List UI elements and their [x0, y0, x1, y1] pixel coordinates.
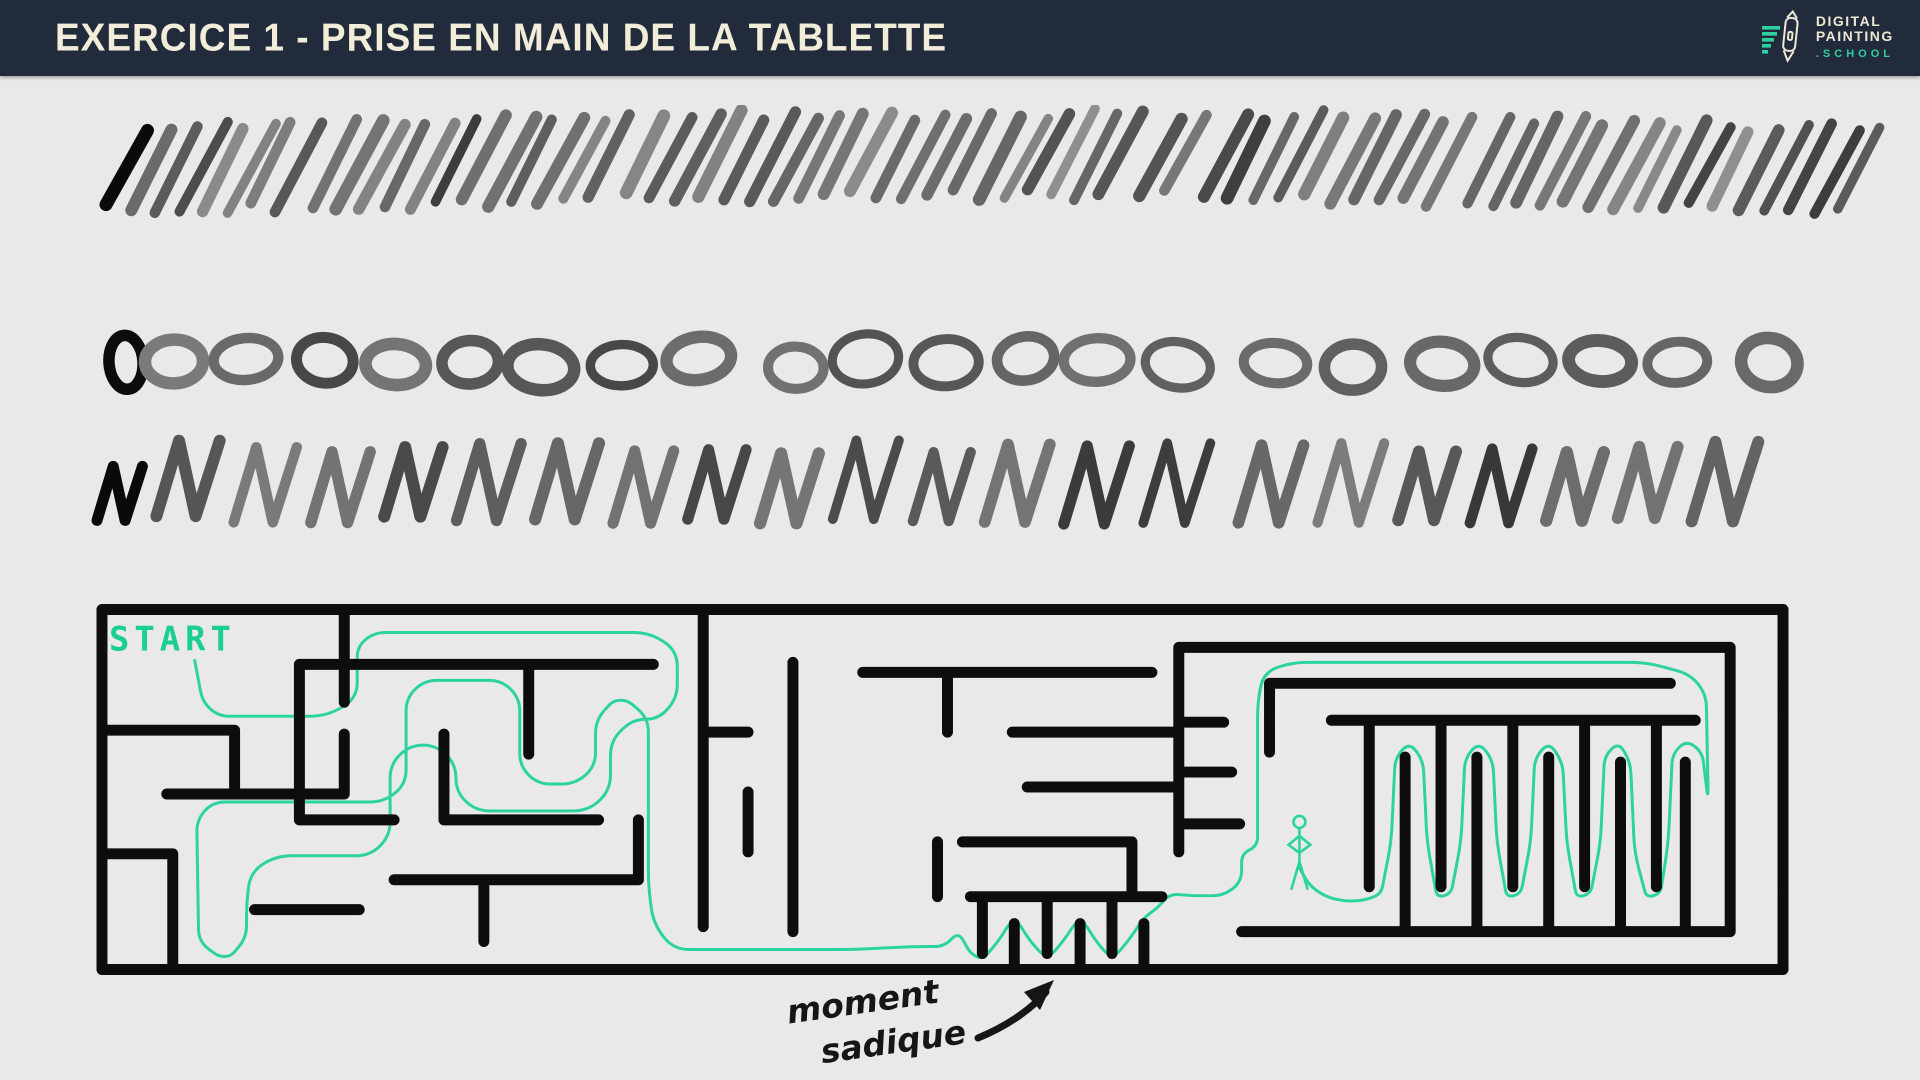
ink-oval — [440, 339, 500, 386]
ink-oval — [505, 341, 576, 393]
annotation-text: moment sadique — [784, 969, 968, 1075]
ink-stroke — [1064, 446, 1130, 524]
logo-word-school: .SCHOOL — [1816, 47, 1894, 62]
ink-oval — [212, 335, 280, 383]
ink-stroke — [1143, 443, 1210, 523]
page-title: EXERCICE 1 - PRISE EN MAIN DE LA TABLETT… — [55, 16, 947, 60]
n-strokes-row — [85, 430, 1915, 540]
ink-oval — [294, 334, 356, 387]
ink-stroke — [234, 447, 297, 522]
ink-stroke — [1318, 443, 1385, 522]
annotation: moment sadique — [730, 952, 1120, 1078]
ink-stroke — [384, 447, 442, 517]
ink-oval — [1063, 336, 1132, 383]
ink-stroke — [1139, 119, 1181, 196]
ink-oval — [1567, 338, 1634, 384]
ink-stroke — [1546, 452, 1604, 521]
ink-stroke — [1398, 452, 1456, 521]
stylus-pen-icon — [1761, 10, 1807, 66]
ink-oval — [1646, 339, 1710, 385]
maze-drawing: START — [95, 602, 1790, 977]
ink-oval — [590, 344, 654, 387]
ink-oval — [767, 346, 824, 390]
header-bar: EXERCICE 1 - PRISE EN MAIN DE LA TABLETT… — [0, 0, 1920, 76]
ink-oval — [912, 337, 980, 388]
logo-word-digital: DIGITAL — [1816, 14, 1894, 29]
ink-oval — [829, 330, 901, 388]
exercise-slide: EXERCICE 1 - PRISE EN MAIN DE LA TABLETT… — [0, 0, 1920, 1080]
ink-oval — [364, 342, 427, 387]
ink-stroke — [760, 453, 819, 523]
ink-stroke — [457, 444, 521, 521]
ink-oval — [1242, 341, 1308, 386]
ink-stroke — [359, 125, 405, 209]
ink-stroke — [156, 441, 219, 516]
ink-stroke — [985, 445, 1050, 522]
slash-strokes-row — [90, 105, 1910, 223]
ink-stroke — [97, 466, 142, 520]
ink-stroke — [1692, 442, 1759, 521]
brand-logo: DIGITAL PAINTING .SCHOOL — [1761, 10, 1894, 66]
ink-stroke — [311, 452, 370, 523]
ink-oval — [1323, 343, 1382, 391]
annotation-arrow-icon — [978, 980, 1054, 1038]
ink-oval — [144, 339, 203, 384]
ink-oval — [1485, 333, 1556, 387]
stick-figure-icon — [1288, 816, 1310, 889]
ink-stroke — [613, 451, 674, 523]
ink-oval — [1141, 336, 1214, 393]
ink-oval — [1408, 339, 1476, 389]
ink-stroke — [1238, 445, 1303, 522]
maze-start-label: START — [109, 619, 236, 658]
ink-oval — [994, 332, 1058, 385]
ink-stroke — [1098, 112, 1142, 195]
ink-stroke — [535, 443, 599, 519]
ink-stroke — [1618, 447, 1678, 518]
logo-wordmark: DIGITAL PAINTING .SCHOOL — [1816, 14, 1894, 62]
ovals-row — [90, 315, 1910, 413]
ink-stroke — [688, 450, 746, 520]
ink-stroke — [913, 452, 971, 521]
logo-word-painting: PAINTING — [1816, 29, 1894, 44]
ink-oval — [664, 332, 735, 384]
ink-stroke — [1470, 449, 1532, 523]
ink-oval — [1737, 333, 1802, 392]
ink-stroke — [1278, 110, 1323, 198]
ink-stroke — [833, 440, 899, 519]
